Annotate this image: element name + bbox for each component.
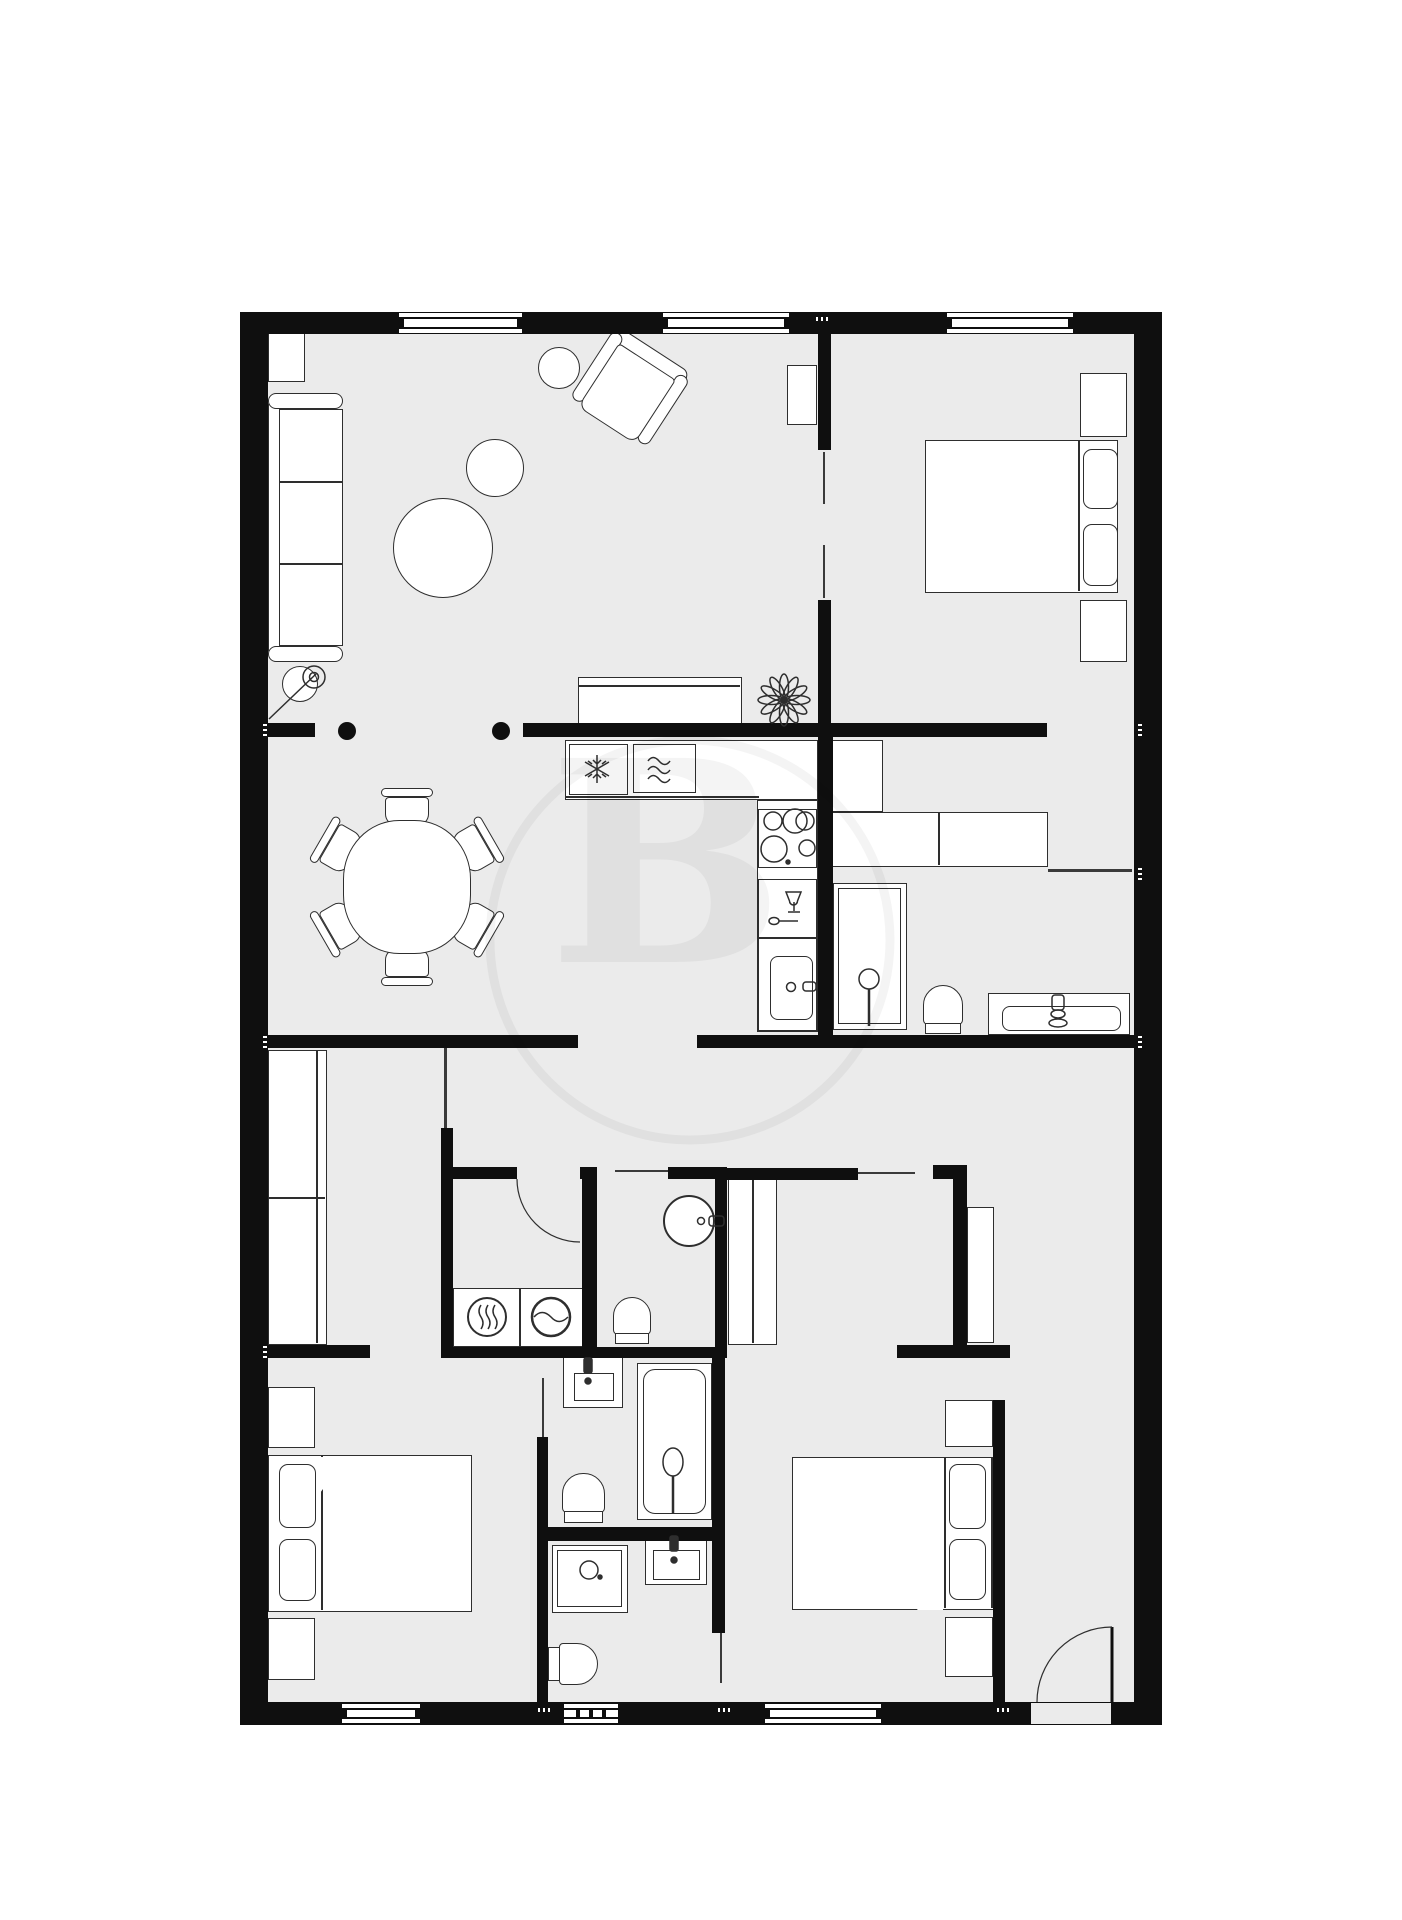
round-basin [663,1195,715,1247]
window [947,313,1073,333]
toilet [923,985,963,1025]
nightstand [268,1387,315,1448]
wall-joint-mark [1138,724,1142,738]
coffee-table-large [393,498,493,598]
pillow [949,1539,986,1600]
pocket-door-line [823,545,825,598]
window [399,313,522,333]
sink-vanity [988,993,1130,1035]
laundry-wall [453,1167,517,1179]
wall-joint-mark [816,317,830,321]
column [492,722,510,740]
shower-tray [838,888,901,1024]
toilet [562,1473,605,1513]
tall-cabinet [830,740,883,812]
double-bed [792,1457,997,1610]
entry-door-opening[interactable] [1031,1703,1111,1724]
sofa-armrest [268,646,343,662]
sink-basin [574,1373,614,1401]
wall-joint-mark [263,1346,267,1360]
toilet-base [615,1333,649,1344]
toilet-base [925,1023,961,1034]
bathtub [637,1363,712,1520]
corridor-wall [727,1168,858,1180]
middle-wall-left [246,1035,578,1048]
wc-wall [668,1167,715,1179]
bathroom-sink [563,1357,623,1408]
sofa-cushion [279,482,343,564]
wc-wall [715,1167,727,1358]
toilet [613,1297,651,1335]
middle-wall-right [697,1035,1134,1048]
wall-joint-mark [997,1708,1011,1712]
opening-line [542,1378,544,1437]
kitchen-counter [565,740,818,800]
double-bed [268,1455,472,1612]
bathroom-wall [537,1437,548,1702]
sideboard-edge [579,685,740,687]
oven [633,744,696,793]
bathroom-wall [712,1355,725,1530]
kitchen-bath-wall [818,737,833,1048]
side-table [538,347,580,389]
window [342,1704,420,1723]
partition-wall [818,600,831,737]
laundry-wall [441,1347,597,1358]
window [663,313,789,333]
hall-wardrobe [728,1178,777,1345]
opening-line [720,1633,722,1683]
washing-machine [520,1288,583,1347]
nightstand [945,1617,993,1677]
counter-edge [566,796,759,798]
wall-shelf [268,333,305,382]
nightstand [1080,600,1127,662]
opening-line [615,1170,668,1172]
floor-plan: B [0,0,1402,1920]
bathroom-door-opening[interactable] [1047,723,1133,737]
pillow [1083,449,1118,509]
cabinet-divider [938,813,940,865]
partition-wall [818,334,831,450]
bed-line [321,1456,323,1610]
kitchen-wall [268,723,315,737]
wall-joint-mark [263,724,267,738]
wardrobe [268,1050,327,1345]
opening-line [858,1172,915,1174]
sink-basin [653,1550,700,1580]
vanity-basin [1002,1006,1121,1031]
shower-square [552,1545,628,1613]
kitchen-counter-column [757,800,818,1032]
pillow [279,1464,316,1528]
outer-wall-right [1134,312,1162,1725]
pillow [279,1539,316,1601]
dryer [453,1288,520,1347]
outer-wall-left [240,312,268,1725]
floor-lamp-base [282,666,318,702]
window [765,1704,881,1723]
bedroom-wall [993,1400,1005,1702]
laundry-wall [582,1179,597,1347]
pillow [1083,524,1118,586]
sofa [268,393,345,662]
bed-line [1078,441,1080,591]
wall-joint-mark [538,1708,552,1712]
dining-table [343,820,471,954]
wall-joint-mark [263,1036,267,1050]
sofa-armrest [268,393,343,409]
bathtub-inner [643,1369,706,1514]
wardrobe-divider [752,1179,754,1343]
nightstand [268,1618,315,1680]
bathroom-wall [712,1530,725,1633]
cooktop [758,809,817,868]
nightstand [945,1400,993,1447]
window-small [564,1704,618,1723]
laundry-wall [441,1128,453,1347]
double-bed [925,440,1118,593]
entry-wardrobe [967,1207,994,1343]
wall-joint-mark [1138,868,1142,882]
nightstand [1080,373,1127,437]
refrigerator [569,744,628,795]
sofa-cushion [279,409,343,482]
kitchen-sink-basin [770,956,813,1020]
bed-line [944,1458,946,1608]
pillow [949,1464,986,1529]
shower [833,883,907,1030]
wall-joint-mark [1138,1036,1142,1050]
wc-wall [597,1347,727,1358]
bedroom-wall [897,1345,1010,1358]
corridor-wall [953,1165,967,1350]
dishwasher [758,879,817,938]
coffee-table-medium [466,439,524,497]
toilet-base [564,1511,603,1523]
opening-line [444,1048,447,1128]
laundry-wall [580,1167,597,1179]
wall-shelf [787,365,817,425]
vanity-cabinet [830,812,1048,867]
sofa-cushion [279,564,343,646]
pocket-door-line [823,452,825,504]
shower-tray [557,1550,622,1607]
wall-joint-mark [718,1708,732,1712]
wardrobe-divider [269,1197,325,1199]
partition-line [1048,869,1132,872]
bathroom-wall [548,1527,720,1541]
kitchen-wall [523,723,1047,737]
sideboard [578,677,742,726]
column [338,722,356,740]
